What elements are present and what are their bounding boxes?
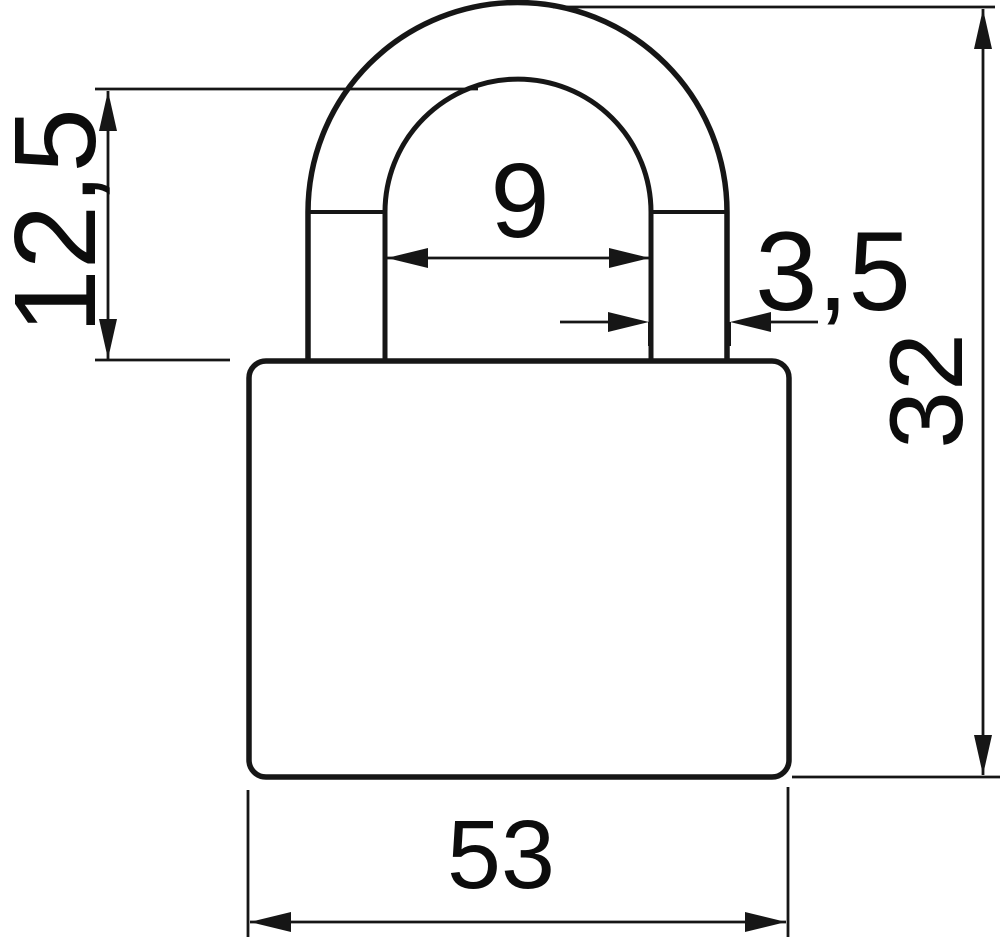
dimension-shackle-inner-width: 9 — [387, 142, 650, 268]
arrowhead-up-icon — [974, 9, 992, 49]
arrowhead-right-icon — [608, 312, 649, 332]
arrowhead-right-icon — [609, 248, 650, 268]
arrowhead-right-icon — [745, 912, 786, 932]
dimension-overall-height: 32 — [553, 7, 1000, 777]
arrowhead-left-icon — [250, 912, 291, 932]
arrowhead-left-icon — [387, 248, 428, 268]
dimension-shackle-wire-diameter: 3,5 — [560, 209, 911, 346]
dimension-body-width: 53 — [248, 787, 788, 937]
drawing-canvas: 12,5 9 3,5 32 — [0, 0, 1000, 937]
dimension-value-32: 32 — [869, 333, 985, 449]
dimension-value-12-5: 12,5 — [0, 108, 120, 334]
arrowhead-down-icon — [974, 735, 992, 775]
dimension-value-53: 53 — [447, 800, 555, 909]
padlock-body — [249, 361, 789, 777]
dimension-shackle-clearance-height: 12,5 — [0, 89, 478, 360]
padlock-dimension-drawing: 12,5 9 3,5 32 — [0, 0, 1000, 937]
dimension-value-3-5: 3,5 — [755, 209, 911, 334]
dimension-value-9: 9 — [491, 142, 550, 260]
